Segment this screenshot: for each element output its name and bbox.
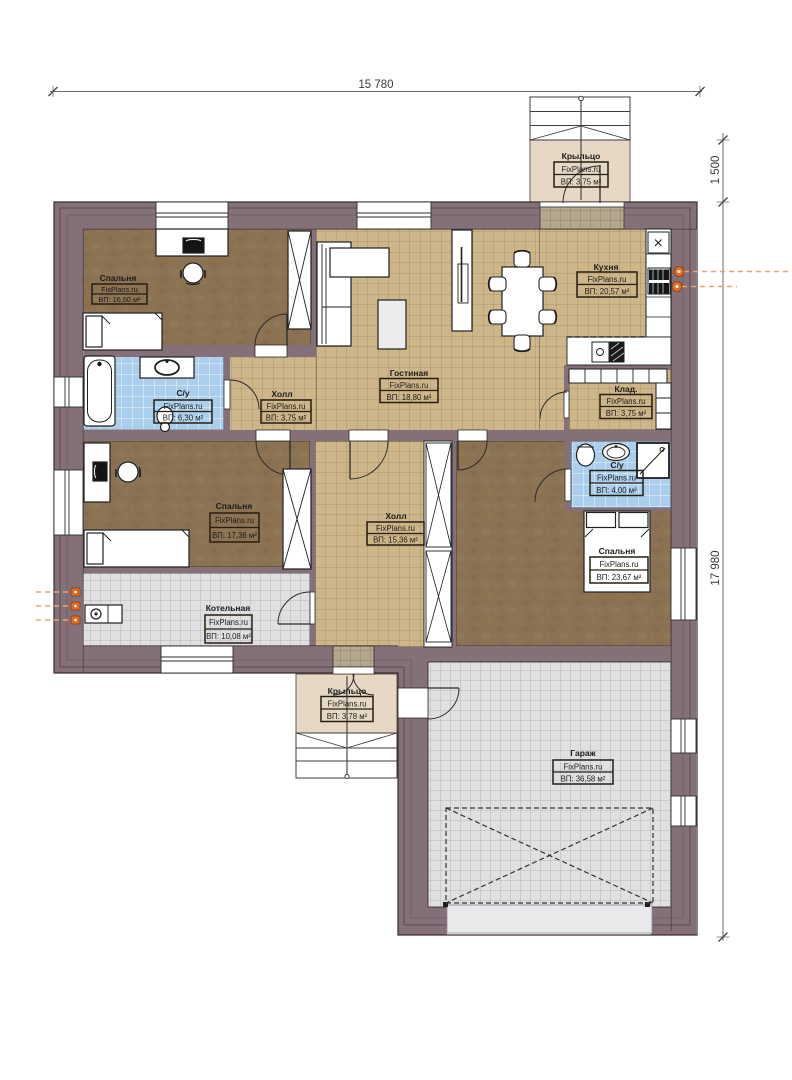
- svg-text:ВП: 17,36 м²: ВП: 17,36 м²: [212, 531, 257, 540]
- svg-text:ВП: 16,60 м²: ВП: 16,60 м²: [99, 295, 141, 304]
- svg-text:С/у: С/у: [176, 388, 190, 398]
- svg-text:ВП: 36,58 м²: ВП: 36,58 м²: [561, 775, 606, 784]
- svg-text:FixPlans.ru: FixPlans.ru: [607, 397, 646, 406]
- svg-text:FixPlans.ru: FixPlans.ru: [215, 516, 254, 525]
- svg-text:Спальня: Спальня: [100, 273, 137, 283]
- svg-text:ВП: 3,75 м²: ВП: 3,75 м²: [266, 414, 307, 423]
- svg-text:ВП: 6,30 м²: ВП: 6,30 м²: [163, 414, 204, 423]
- svg-text:ВП: 4,00 м²: ВП: 4,00 м²: [596, 486, 637, 495]
- svg-text:Крыльцо: Крыльцо: [562, 151, 601, 161]
- svg-text:FixPlans.ru: FixPlans.ru: [328, 700, 367, 709]
- svg-text:FixPlans.ru: FixPlans.ru: [588, 275, 627, 284]
- svg-text:FixPlans.ru: FixPlans.ru: [376, 524, 415, 533]
- svg-text:Спальня: Спальня: [599, 546, 636, 556]
- svg-text:Спальня: Спальня: [216, 501, 253, 511]
- svg-text:Клад.: Клад.: [614, 384, 637, 394]
- svg-text:FixPlans.ru: FixPlans.ru: [597, 474, 636, 483]
- svg-text:ВП: 18,80 м²: ВП: 18,80 м²: [387, 393, 432, 402]
- svg-text:ВП: 15,36 м²: ВП: 15,36 м²: [373, 536, 418, 545]
- svg-text:FixPlans.ru: FixPlans.ru: [209, 618, 248, 627]
- svg-text:Гараж: Гараж: [570, 748, 596, 758]
- svg-text:ВП: 23,67 м²: ВП: 23,67 м²: [597, 573, 642, 582]
- svg-text:Котельная: Котельная: [206, 603, 251, 613]
- svg-text:ВП: 3,78 м²: ВП: 3,78 м²: [327, 712, 368, 721]
- svg-text:1 500: 1 500: [710, 156, 722, 185]
- svg-text:FixPlans.ru: FixPlans.ru: [390, 381, 429, 390]
- svg-text:FixPlans.ru: FixPlans.ru: [562, 165, 601, 174]
- svg-text:ВП: 10,08 м²: ВП: 10,08 м²: [206, 632, 251, 641]
- svg-text:ВП: 3,75 м²: ВП: 3,75 м²: [606, 409, 647, 418]
- svg-text:Холл: Холл: [271, 389, 292, 399]
- svg-text:Холл: Холл: [385, 511, 406, 521]
- svg-text:17 980: 17 980: [710, 550, 722, 585]
- svg-text:С/у: С/у: [610, 460, 624, 470]
- svg-text:Крыльцо: Крыльцо: [328, 686, 367, 696]
- svg-text:FixPlans.ru: FixPlans.ru: [564, 763, 603, 772]
- svg-text:ВП: 20,57 м²: ВП: 20,57 м²: [585, 287, 630, 296]
- svg-text:Кухня: Кухня: [594, 262, 619, 272]
- svg-text:FixPlans.ru: FixPlans.ru: [267, 402, 306, 411]
- svg-text:15 780: 15 780: [358, 79, 393, 91]
- svg-text:ВП: 3,75 м²: ВП: 3,75 м²: [561, 178, 602, 187]
- svg-text:FixPlans.ru: FixPlans.ru: [164, 402, 203, 411]
- svg-text:Гостиная: Гостиная: [390, 368, 428, 378]
- svg-text:FixPlans.ru: FixPlans.ru: [101, 285, 138, 294]
- svg-text:FixPlans.ru: FixPlans.ru: [600, 560, 639, 569]
